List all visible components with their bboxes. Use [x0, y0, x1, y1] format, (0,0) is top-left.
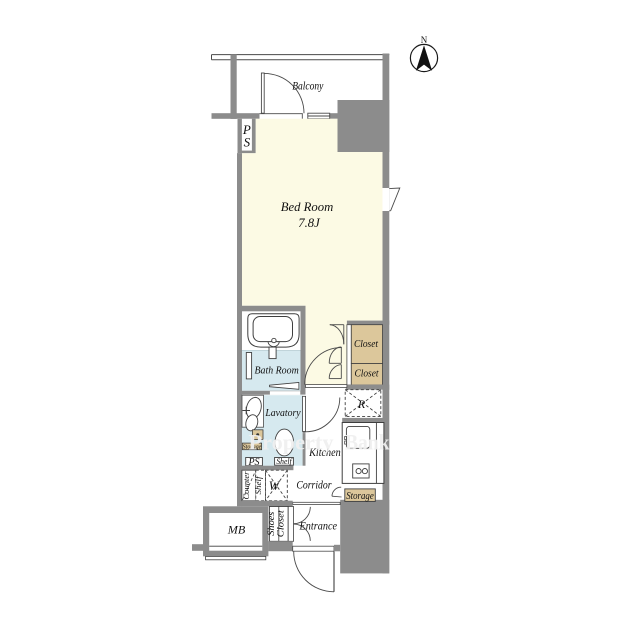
svg-text:Closet: Closet	[354, 367, 379, 379]
svg-text:Closet: Closet	[354, 338, 379, 350]
svg-text:R: R	[357, 397, 366, 411]
svg-text:N: N	[421, 35, 428, 45]
svg-text:Shelf: Shelf	[254, 475, 263, 495]
svg-text:Entrance: Entrance	[299, 519, 338, 533]
svg-text:Shelf: Shelf	[276, 457, 293, 466]
svg-text:W: W	[269, 479, 281, 493]
svg-text:Shoes: Shoes	[266, 511, 276, 536]
svg-text:Bed Room: Bed Room	[281, 199, 334, 214]
svg-text:Balcony: Balcony	[292, 79, 324, 93]
svg-text:Property: Property	[249, 430, 335, 455]
svg-text:7.8J: 7.8J	[298, 215, 321, 230]
svg-text:Counter: Counter	[242, 471, 251, 500]
svg-text:Storage: Storage	[346, 491, 374, 502]
svg-text:Bath Room: Bath Room	[254, 365, 298, 377]
svg-text:MB: MB	[227, 525, 246, 537]
svg-text:Bank: Bank	[345, 430, 390, 455]
svg-text:S: S	[244, 134, 251, 149]
svg-text:Closet: Closet	[276, 510, 286, 538]
svg-text:Lavatory: Lavatory	[265, 407, 301, 419]
svg-text:Corridor: Corridor	[296, 478, 331, 492]
